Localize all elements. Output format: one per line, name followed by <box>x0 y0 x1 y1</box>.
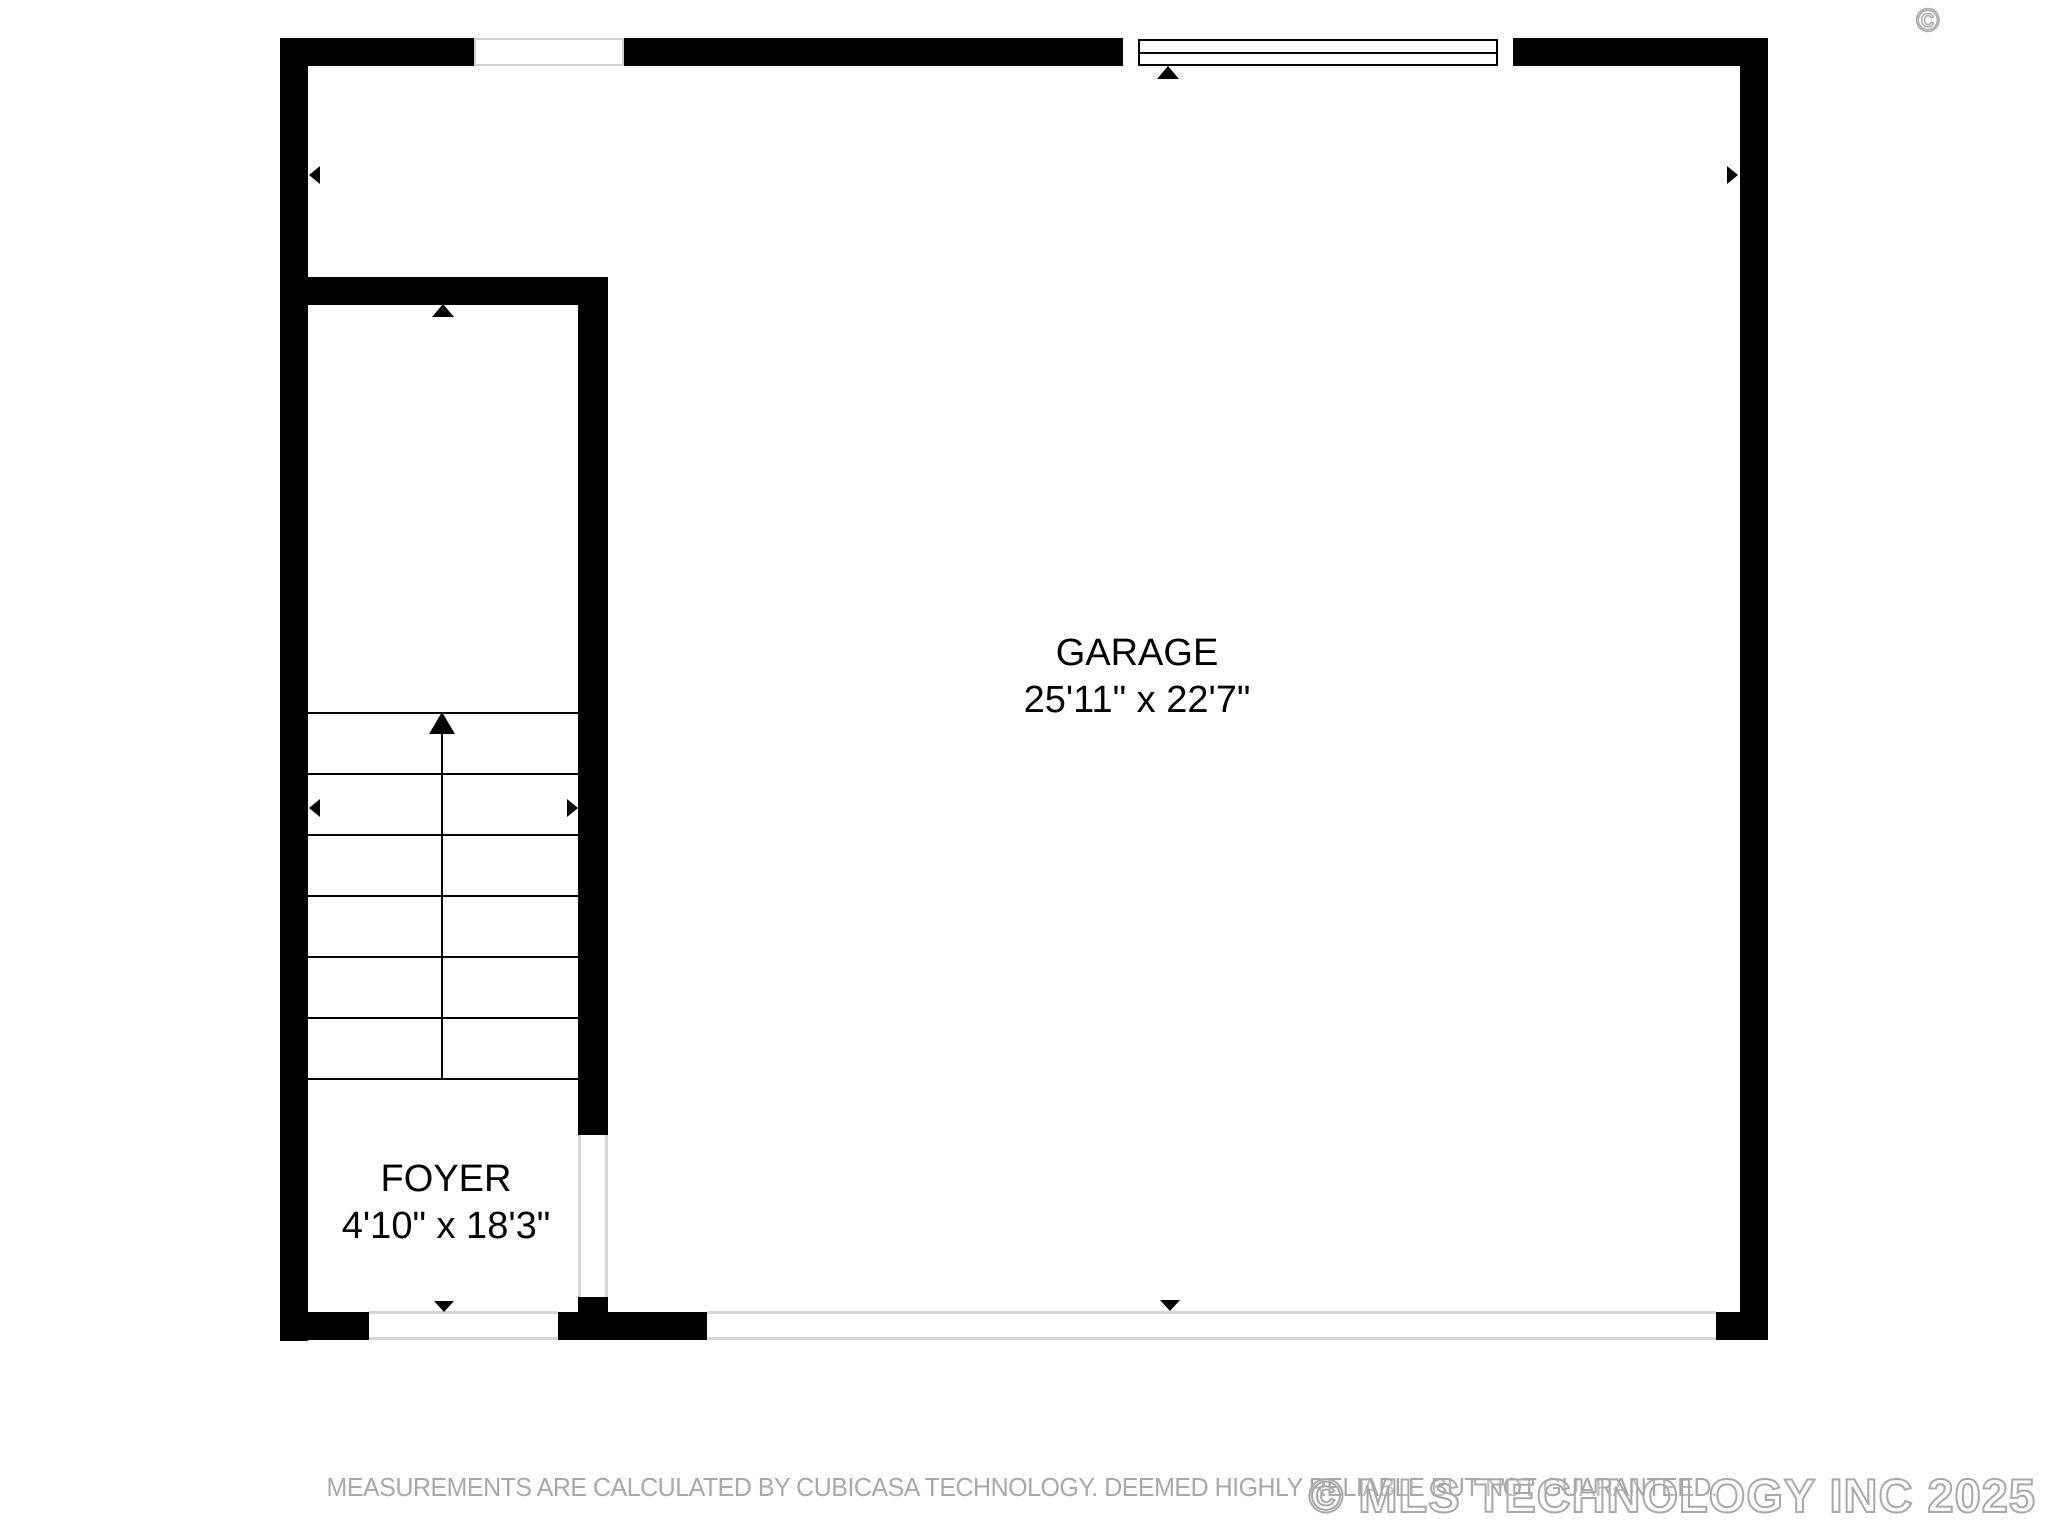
arrow-up-stairs-icon <box>429 712 455 734</box>
wall-top-segment-middle <box>624 38 1123 66</box>
front-door-opening-outer-line <box>369 1311 558 1314</box>
foyer-garage-opening-left-line <box>578 1135 581 1297</box>
garage-door-panel-line <box>1140 52 1496 54</box>
watermark-text: © MLS TECHNOLOGY INC 2025 <box>1309 1468 2036 1523</box>
wall-bottom-foyer <box>280 1312 369 1340</box>
wall-top-segment-left <box>280 38 474 66</box>
garage-bottom-opening-outer-line <box>707 1311 1716 1314</box>
wall-left <box>280 38 308 1341</box>
room-label-foyer: FOYER 4'10" x 18'3" <box>342 1156 550 1250</box>
stair-tread-line <box>308 1017 578 1019</box>
garage-name: GARAGE <box>1024 630 1251 677</box>
foyer-garage-opening-right-line <box>605 1135 608 1297</box>
wall-top-segment-right <box>1513 38 1768 66</box>
garage-bottom-opening-inner-line <box>707 1337 1716 1340</box>
arrow-left-garage-icon <box>309 166 320 184</box>
arrow-down-front-door-icon <box>434 1301 454 1312</box>
window-top <box>474 38 624 66</box>
arrow-up-garage-door-icon <box>1157 66 1179 79</box>
garage-door <box>1138 39 1498 66</box>
stair-tread-line <box>308 895 578 897</box>
room-label-garage: GARAGE 25'11" x 22'7" <box>1024 630 1251 724</box>
stair-center-line <box>441 712 443 1080</box>
foyer-dimensions: 4'10" x 18'3" <box>342 1203 550 1250</box>
wall-foyer-garage-lower-stub <box>578 1297 608 1340</box>
front-door-opening-inner-line <box>369 1337 558 1340</box>
arrow-down-garage-bottom-icon <box>1160 1300 1180 1311</box>
garage-dimensions: 25'11" x 22'7" <box>1024 677 1251 724</box>
wall-foyer-garage-upper <box>578 277 608 1135</box>
arrow-right-garage-icon <box>1727 166 1738 184</box>
wall-right <box>1740 38 1768 1340</box>
stair-tread-line <box>308 956 578 958</box>
stair-tread-line <box>308 834 578 836</box>
wall-bottom-right-corner <box>1716 1312 1768 1340</box>
arrow-left-foyer-icon <box>309 799 320 817</box>
stair-tread-line <box>308 773 578 775</box>
floorplan-canvas: GARAGE 25'11" x 22'7" FOYER 4'10" x 18'3… <box>0 0 2048 1536</box>
foyer-name: FOYER <box>342 1156 550 1203</box>
stair-tread-line <box>308 1078 578 1080</box>
arrow-up-foyer-icon <box>432 304 454 317</box>
wall-foyer-top <box>280 277 608 305</box>
copyright-icon: © <box>1916 2 1940 39</box>
arrow-right-foyer-icon <box>567 799 578 817</box>
